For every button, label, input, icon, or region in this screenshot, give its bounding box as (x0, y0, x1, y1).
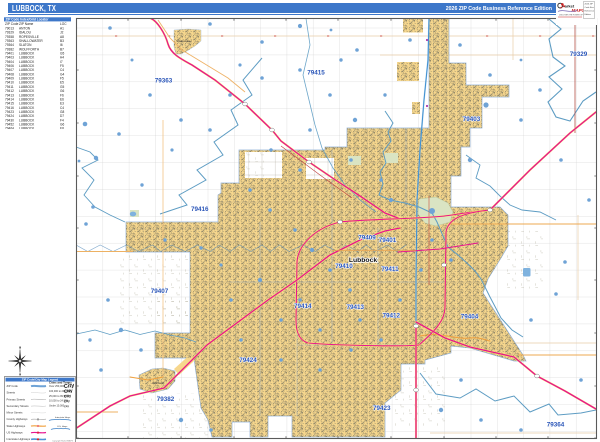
svg-text:Code Bus.: Code Bus. (585, 7, 595, 9)
svg-text:79415: 79415 (307, 69, 325, 76)
svg-text:Minor Streets: Minor Streets (7, 411, 24, 415)
svg-text:Secondary Streets: Secondary Streets (7, 404, 30, 408)
svg-text:2026 ZIP: 2026 ZIP (585, 4, 594, 6)
svg-text:79401: 79401 (379, 237, 397, 244)
svg-text:79404: 79404 (461, 314, 479, 321)
svg-text:79403: 79403 (463, 116, 481, 123)
svg-text:LUBBOCK: LUBBOCK (19, 127, 35, 129)
svg-text:City: City (64, 405, 70, 409)
svg-text:ZIP Code Index/Grid Locator: ZIP Code Index/Grid Locator (5, 18, 49, 22)
svg-text:Streets: Streets (7, 391, 16, 395)
svg-text:79329: 79329 (570, 51, 588, 58)
svg-text:79407: 79407 (151, 288, 169, 295)
svg-text:79416: 79416 (191, 206, 209, 213)
svg-text:79414: 79414 (294, 303, 312, 310)
svg-text:79409: 79409 (358, 235, 376, 242)
svg-text:79412: 79412 (382, 313, 400, 320)
svg-text:79424: 79424 (239, 357, 257, 364)
svg-text:Interstate Hwys.: Interstate Hwys. (55, 416, 71, 419)
svg-text:Reference: Reference (585, 9, 595, 12)
svg-text:79464: 79464 (5, 127, 14, 129)
svg-text:79423: 79423 (373, 405, 391, 412)
svg-text:Primary Streets: Primary Streets (7, 397, 26, 401)
svg-text:79413: 79413 (346, 304, 364, 311)
svg-text:Edition: Edition (585, 13, 592, 16)
svg-text:79363: 79363 (155, 78, 173, 85)
svg-text:City: City (64, 394, 73, 399)
svg-text:Shallowater: Shallowater (176, 39, 192, 43)
svg-text:ZIP Code: ZIP Code (7, 384, 19, 388)
svg-text:Under 10,000: Under 10,000 (49, 404, 65, 407)
svg-text:Interstate Highways: Interstate Highways (7, 437, 31, 441)
svg-text:County Highways: County Highways (7, 417, 29, 421)
svg-text:79364: 79364 (547, 422, 565, 429)
svg-text:Wolfforth: Wolfforth (152, 381, 164, 385)
svg-text:79411: 79411 (381, 266, 399, 273)
svg-text:79410: 79410 (335, 263, 353, 270)
svg-text:U.S. Hwys.: U.S. Hwys. (57, 426, 68, 428)
svg-text:79382: 79382 (157, 396, 175, 403)
svg-text:US Highways: US Highways (7, 431, 24, 435)
svg-text:State Highways: State Highways (7, 424, 26, 428)
svg-text:E8: E8 (60, 127, 64, 129)
svg-text:City: City (64, 399, 70, 404)
svg-text:City: City (64, 388, 74, 394)
svg-text:Over 250,000: Over 250,000 (49, 385, 65, 388)
svg-text:Lubbock: Lubbock (349, 257, 378, 264)
